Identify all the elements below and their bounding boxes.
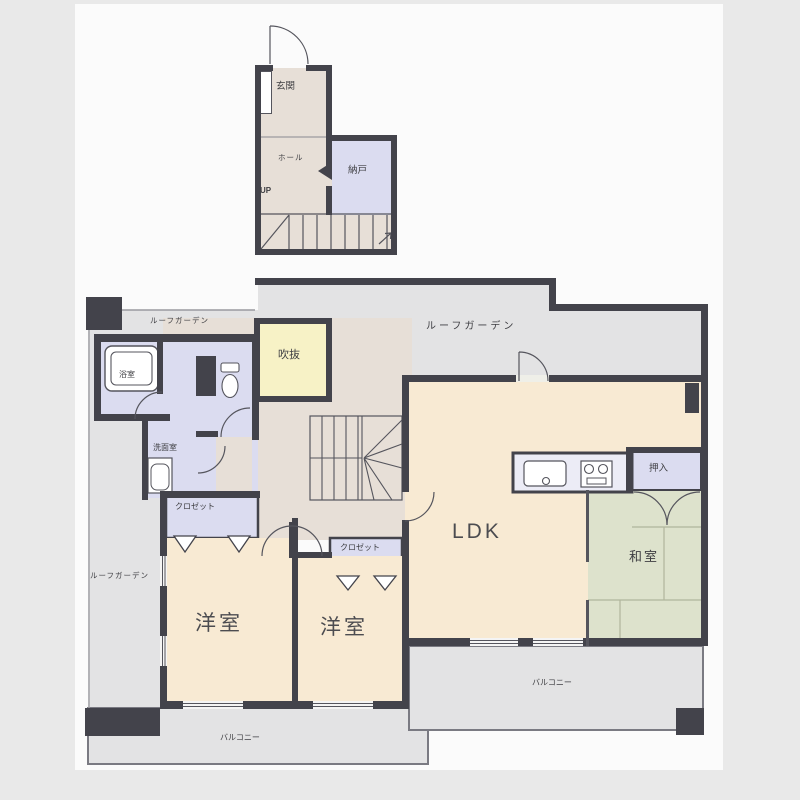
label-balcony-b: バルコニー	[532, 679, 572, 687]
label-balcony-a: バルコニー	[220, 734, 260, 742]
roof-garden-notch	[90, 421, 142, 500]
ldk-terrace-opening	[516, 375, 549, 382]
label-oshiire: 押入	[649, 464, 668, 474]
label-roof-garden-b: ルーフガーデン	[426, 322, 516, 332]
main-floor	[85, 278, 708, 764]
kitchen-counter	[513, 453, 632, 492]
japanese-room-floor	[588, 490, 701, 646]
label-bath: 浴室	[119, 371, 135, 379]
bathtub	[105, 346, 158, 391]
kitchen-stove	[581, 461, 612, 487]
pipe-space	[196, 356, 216, 396]
pillar-top-left	[86, 297, 122, 330]
label-yoshitsu-a: 洋室	[195, 613, 243, 634]
label-ldk: LDK	[452, 521, 502, 542]
label-yoshitsu-b: 洋室	[320, 617, 368, 638]
label-void: 吹抜	[278, 350, 300, 361]
pillar-bottom-right	[676, 708, 704, 735]
label-closet-b: クロゼット	[340, 544, 380, 552]
hall-under-toilet	[216, 437, 252, 498]
label-hall: ホール	[278, 154, 304, 162]
pillar-bottom-left	[85, 708, 160, 736]
floor-plan-image: 玄関 ホール UP 納戸 ルーフガーデン ルーフガーデン ルーフガーデン 浴室 …	[0, 0, 800, 800]
shoe-cabinet	[260, 72, 272, 114]
balcony-east	[409, 646, 703, 730]
kitchen-sink	[524, 461, 566, 486]
label-genkan: 玄関	[276, 82, 295, 92]
storage-room-floor	[332, 141, 394, 215]
toilet-fixture	[221, 363, 239, 398]
label-roof-garden-c: ルーフガーデン	[90, 572, 149, 580]
label-up: UP	[260, 187, 271, 195]
label-roof-garden-a: ルーフガーデン	[150, 317, 209, 325]
pillar-ldk	[685, 383, 699, 413]
label-nando: 納戸	[348, 166, 367, 176]
label-washitsu: 和室	[629, 550, 659, 563]
label-washroom: 洗面室	[153, 444, 177, 452]
label-closet-a: クロゼット	[175, 503, 215, 511]
washing-machine	[148, 458, 172, 493]
floor-plan-drawing	[0, 0, 800, 800]
